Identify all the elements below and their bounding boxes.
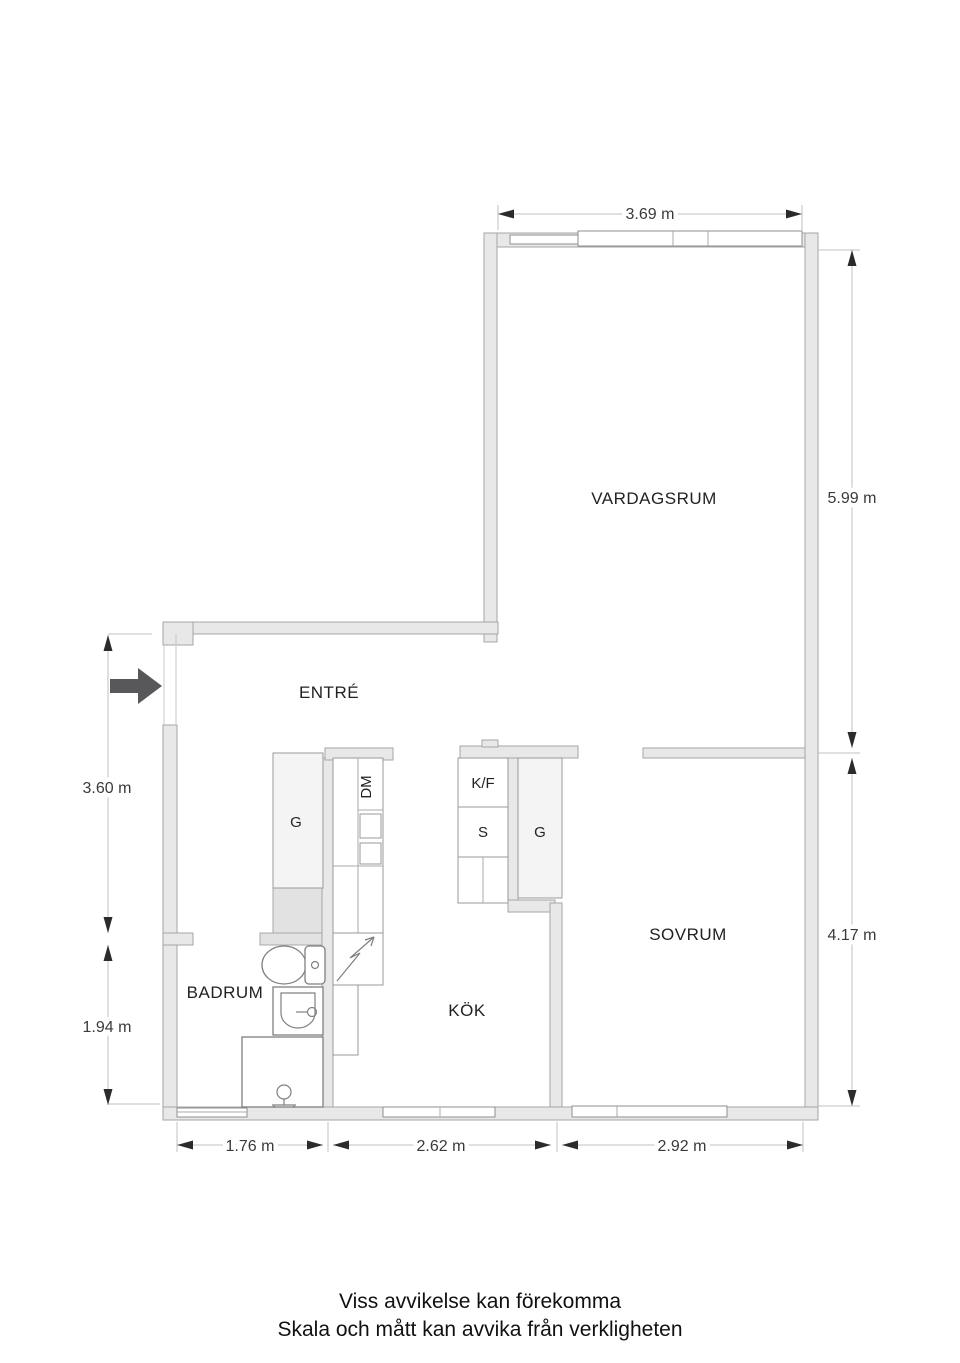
shaft xyxy=(260,933,323,945)
wall-segment xyxy=(460,746,578,758)
dimension-label: 2.92 m xyxy=(658,1138,707,1155)
toilet-icon xyxy=(262,946,306,984)
window xyxy=(578,231,802,246)
arrowhead-icon xyxy=(307,1141,323,1150)
room-label-badrum: BADRUM xyxy=(187,983,264,1002)
arrowhead-icon xyxy=(786,210,802,219)
wall-segment xyxy=(163,622,193,645)
dimension-label: 2.62 m xyxy=(417,1138,466,1155)
room-label-entre: ENTRÉ xyxy=(299,683,359,702)
arrowhead-icon xyxy=(848,732,857,748)
wall-segment xyxy=(508,900,555,912)
toilet-tank-icon xyxy=(305,946,325,984)
dimension-label: 3.60 m xyxy=(83,780,132,797)
arrowhead-icon xyxy=(104,917,113,933)
arrowhead-icon xyxy=(333,1141,349,1150)
wall-segment xyxy=(508,758,518,903)
label-dishwasher: DM xyxy=(358,775,375,798)
disclaimer-line-2: Skala och mått kan avvika från verklighe… xyxy=(277,1318,682,1341)
window xyxy=(383,1107,495,1117)
wall-segment xyxy=(482,740,498,747)
dimension-label: 5.99 m xyxy=(828,490,877,507)
arrowhead-icon xyxy=(562,1141,578,1150)
room-label-vardagsrum: VARDAGSRUM xyxy=(591,489,717,508)
window xyxy=(572,1106,727,1117)
bathroom-fixtures xyxy=(242,946,325,1108)
arrowhead-icon xyxy=(177,1141,193,1150)
wall-segment xyxy=(163,725,177,1120)
disclaimer: Viss avvikelse kan förekomma Skala och m… xyxy=(277,1290,682,1341)
wall-segment xyxy=(163,933,193,945)
arrowhead-icon xyxy=(535,1141,551,1150)
dimension-label: 1.94 m xyxy=(83,1019,132,1036)
dimension-label: 4.17 m xyxy=(828,927,877,944)
disclaimer-line-1: Viss avvikelse kan förekomma xyxy=(339,1290,621,1313)
arrowhead-icon xyxy=(848,758,857,774)
arrowhead-icon xyxy=(848,250,857,266)
arrowhead-icon xyxy=(104,1089,113,1105)
wall-segment xyxy=(484,233,497,642)
arrowhead-icon xyxy=(848,1090,857,1106)
label-fridge-freezer: K/F xyxy=(471,775,494,792)
floor-plan-svg: 3.69 m 5.99 m 4.17 m 3.60 m 1.94 m xyxy=(0,0,960,1358)
arrowhead-icon xyxy=(104,635,113,651)
shaft xyxy=(273,888,323,933)
wall-segment xyxy=(643,748,805,758)
dimension-label: 1.76 m xyxy=(226,1138,275,1155)
arrowhead-icon xyxy=(104,945,113,961)
arrowhead-icon xyxy=(787,1141,803,1150)
room-label-sovrum: SOVRUM xyxy=(649,925,727,944)
dimension-label: 3.69 m xyxy=(626,206,675,223)
appliance-box xyxy=(360,843,381,864)
wall-segment xyxy=(163,622,498,634)
kitchen-counter xyxy=(333,985,358,1055)
wall-segment xyxy=(805,233,818,1120)
arrowhead-icon xyxy=(498,210,514,219)
entry-arrow-icon xyxy=(110,668,162,704)
room-label-kok: KÖK xyxy=(448,1001,486,1020)
label-wardrobe-entre: G xyxy=(290,814,302,831)
window xyxy=(510,235,578,244)
wall-segment xyxy=(550,903,562,1107)
label-wardrobe-sovrum: G xyxy=(534,824,546,841)
appliance-box xyxy=(360,814,381,838)
label-cabinet: S xyxy=(478,824,488,841)
shower-area xyxy=(242,1037,323,1107)
floor-plan-page: 3.69 m 5.99 m 4.17 m 3.60 m 1.94 m xyxy=(0,0,960,1358)
